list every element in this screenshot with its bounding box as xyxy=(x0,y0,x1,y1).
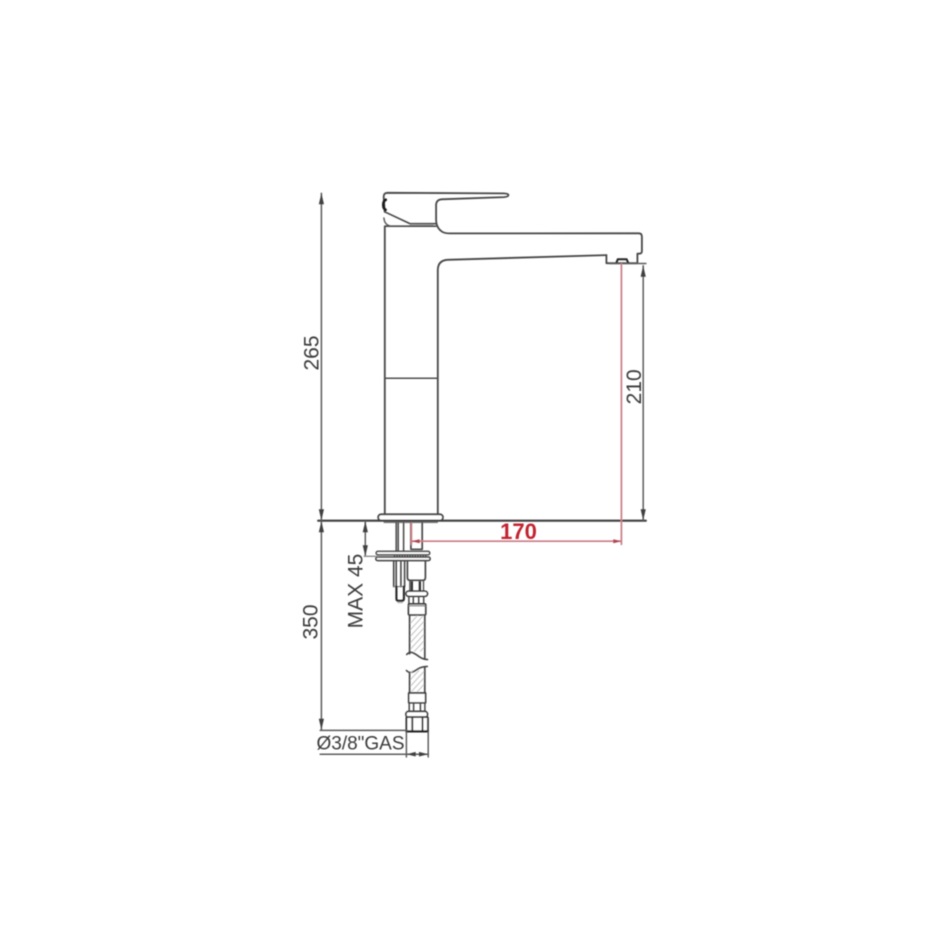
svg-text:170: 170 xyxy=(500,519,537,544)
svg-text:210: 210 xyxy=(623,369,646,404)
svg-text:MAX 45: MAX 45 xyxy=(344,554,367,629)
svg-text:350: 350 xyxy=(300,604,323,639)
svg-text:Ø3/8"GAS: Ø3/8"GAS xyxy=(316,734,404,755)
svg-text:265: 265 xyxy=(300,335,323,370)
